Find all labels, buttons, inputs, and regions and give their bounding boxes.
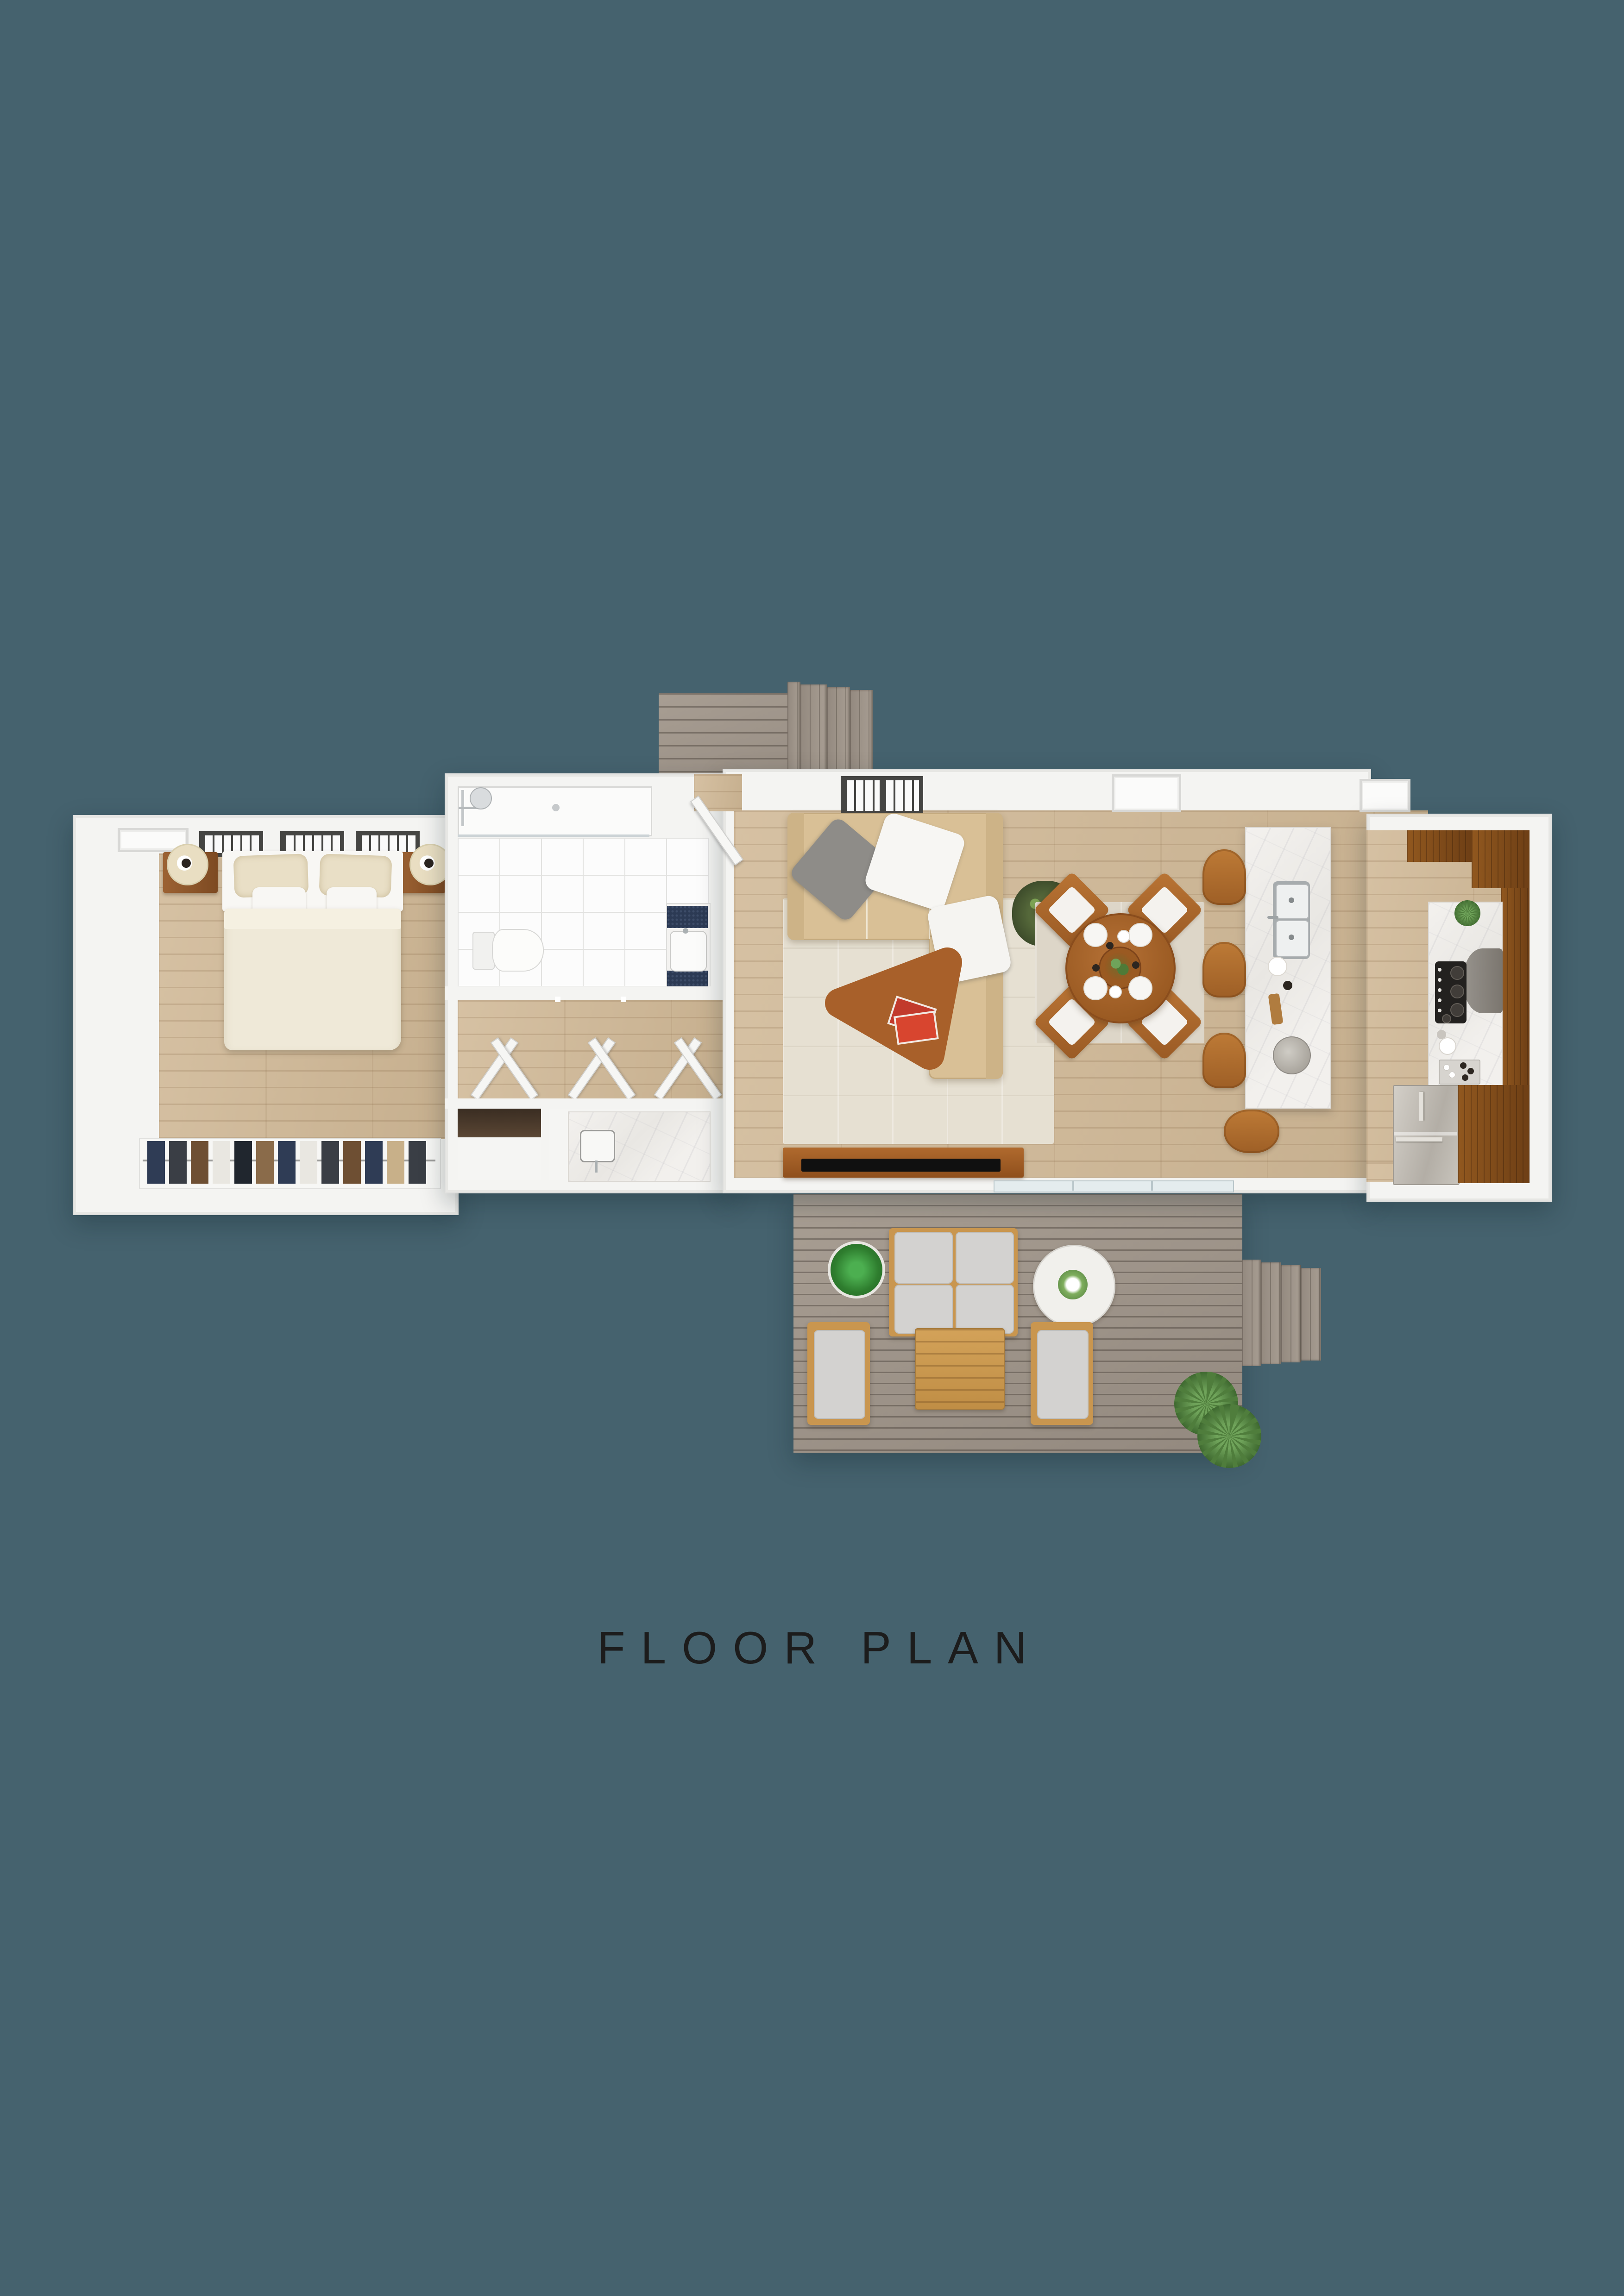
- clothes-item: [321, 1141, 339, 1184]
- kitchen-counter-corner: [1472, 830, 1530, 888]
- bed-duvet: [224, 909, 401, 1050]
- living-window: [841, 776, 884, 815]
- clothes-item: [256, 1141, 274, 1184]
- shower-head-icon: [470, 787, 492, 809]
- hallway-wall: [445, 986, 734, 1000]
- hall-bottom-wall: [445, 1098, 734, 1109]
- room-divider-wall: [541, 1109, 549, 1180]
- fridge-divider: [1394, 1132, 1457, 1135]
- bottle: [1460, 1062, 1467, 1069]
- bottom-deck-step: [1301, 1268, 1321, 1361]
- clothes-item: [234, 1141, 252, 1184]
- clothes-item: [365, 1141, 383, 1184]
- clothes-item: [278, 1141, 296, 1184]
- palm-plant: [1197, 1404, 1261, 1468]
- sink-drain-icon: [1289, 897, 1294, 903]
- bathroom-door-jamb: [555, 997, 560, 1002]
- outdoor-sofa-cushion: [894, 1232, 953, 1284]
- cup: [1109, 985, 1122, 998]
- outdoor-sofa-cushion: [956, 1232, 1014, 1284]
- counter-plant: [1454, 900, 1480, 926]
- bottle: [1462, 1074, 1468, 1081]
- cooktop-knob: [1438, 968, 1441, 972]
- shower-glass: [458, 834, 649, 837]
- bathroom-door-jamb: [621, 997, 626, 1002]
- counter-tray: [1439, 1060, 1480, 1085]
- clothes-item: [147, 1141, 165, 1184]
- island-faucet-icon: [1267, 916, 1278, 919]
- prep-bowl: [1268, 957, 1287, 976]
- pepper-grinder: [1283, 981, 1292, 990]
- kitchen-window: [1360, 779, 1410, 812]
- living-window: [1112, 774, 1181, 812]
- kettle: [1273, 1036, 1311, 1074]
- kitchen-counter-right: [1501, 888, 1530, 1085]
- bottle-white: [1449, 1072, 1455, 1078]
- bathroom-sink: [670, 931, 707, 972]
- bottle: [1106, 942, 1114, 949]
- toilet-tank: [472, 932, 495, 970]
- laundry-closet-shadow: [458, 1109, 541, 1137]
- clothes-item: [169, 1141, 187, 1184]
- burner-icon: [1450, 1003, 1464, 1017]
- bottom-deck-step: [1261, 1262, 1281, 1364]
- burner-icon: [1450, 966, 1464, 980]
- bottle: [1467, 1068, 1474, 1074]
- burner-icon: [1450, 985, 1464, 998]
- lamp-bulb-icon: [424, 859, 434, 868]
- lamp-bulb-icon: [182, 859, 191, 868]
- fridge-handle-icon: [1419, 1092, 1423, 1121]
- dinner-plate: [1083, 923, 1108, 947]
- range-hood: [1463, 948, 1503, 1013]
- cooktop-knob: [1438, 998, 1441, 1002]
- dinner-plate: [1128, 976, 1152, 1000]
- bottom-deck-step: [1242, 1260, 1261, 1366]
- cooktop-knob: [1438, 988, 1441, 992]
- vanity-mosaic-tile: [667, 971, 708, 986]
- cooktop-knob: [1438, 1009, 1441, 1012]
- round-planter: [828, 1241, 885, 1299]
- clothes-item: [387, 1141, 404, 1184]
- sink-drain-icon: [1289, 935, 1294, 940]
- flower-vase: [1058, 1270, 1088, 1299]
- sink-faucet-icon: [683, 928, 688, 934]
- bottle: [1092, 964, 1100, 972]
- shower-drain-icon: [552, 804, 560, 811]
- dinner-plate: [1083, 976, 1108, 1000]
- toilet: [492, 929, 544, 972]
- clothes-item: [343, 1141, 361, 1184]
- coffee-table: [818, 940, 966, 1074]
- bar-stool: [1224, 1110, 1279, 1153]
- bar-stool: [1202, 942, 1246, 997]
- table-greens: [1104, 952, 1133, 981]
- cup: [1117, 930, 1130, 943]
- bottom-deck-step: [1281, 1265, 1301, 1362]
- kitchen-cabinet-block: [1458, 1085, 1530, 1183]
- bottle-white: [1443, 1064, 1450, 1071]
- powder-sink: [580, 1130, 615, 1162]
- bed-duvet-fold: [224, 909, 401, 929]
- clothes-item: [191, 1141, 208, 1184]
- bar-stool: [1202, 1033, 1246, 1088]
- outdoor-sofa-cushion: [894, 1285, 953, 1334]
- sliding-door-mullion: [1151, 1180, 1153, 1191]
- vanity-mosaic-tile: [667, 906, 708, 928]
- cooktop-knob: [1438, 978, 1441, 982]
- bar-stool: [1202, 849, 1246, 905]
- clothes-item: [213, 1141, 230, 1184]
- clothes-item: [409, 1141, 426, 1184]
- floor-plan-title: FLOOR PLAN: [0, 1622, 1624, 1674]
- living-window: [880, 776, 923, 815]
- outdoor-sofa-cushion: [956, 1285, 1014, 1334]
- magazine: [894, 1012, 938, 1044]
- sliding-door-mullion: [1072, 1180, 1074, 1191]
- clothes-item: [300, 1141, 317, 1184]
- powder-faucet-icon: [595, 1161, 598, 1173]
- television: [801, 1159, 1001, 1172]
- outdoor-armchair-cushion: [1037, 1330, 1089, 1419]
- bottle: [1132, 961, 1139, 969]
- outdoor-armchair-cushion: [814, 1330, 865, 1419]
- pitcher: [1439, 1037, 1456, 1055]
- kitchen-counter-top: [1407, 830, 1472, 862]
- dinner-plate: [1128, 923, 1152, 947]
- sliding-door: [994, 1180, 1234, 1192]
- outdoor-coffee-table: [915, 1328, 1005, 1410]
- fridge-handle-icon: [1396, 1137, 1442, 1142]
- burner-icon: [1442, 1014, 1451, 1023]
